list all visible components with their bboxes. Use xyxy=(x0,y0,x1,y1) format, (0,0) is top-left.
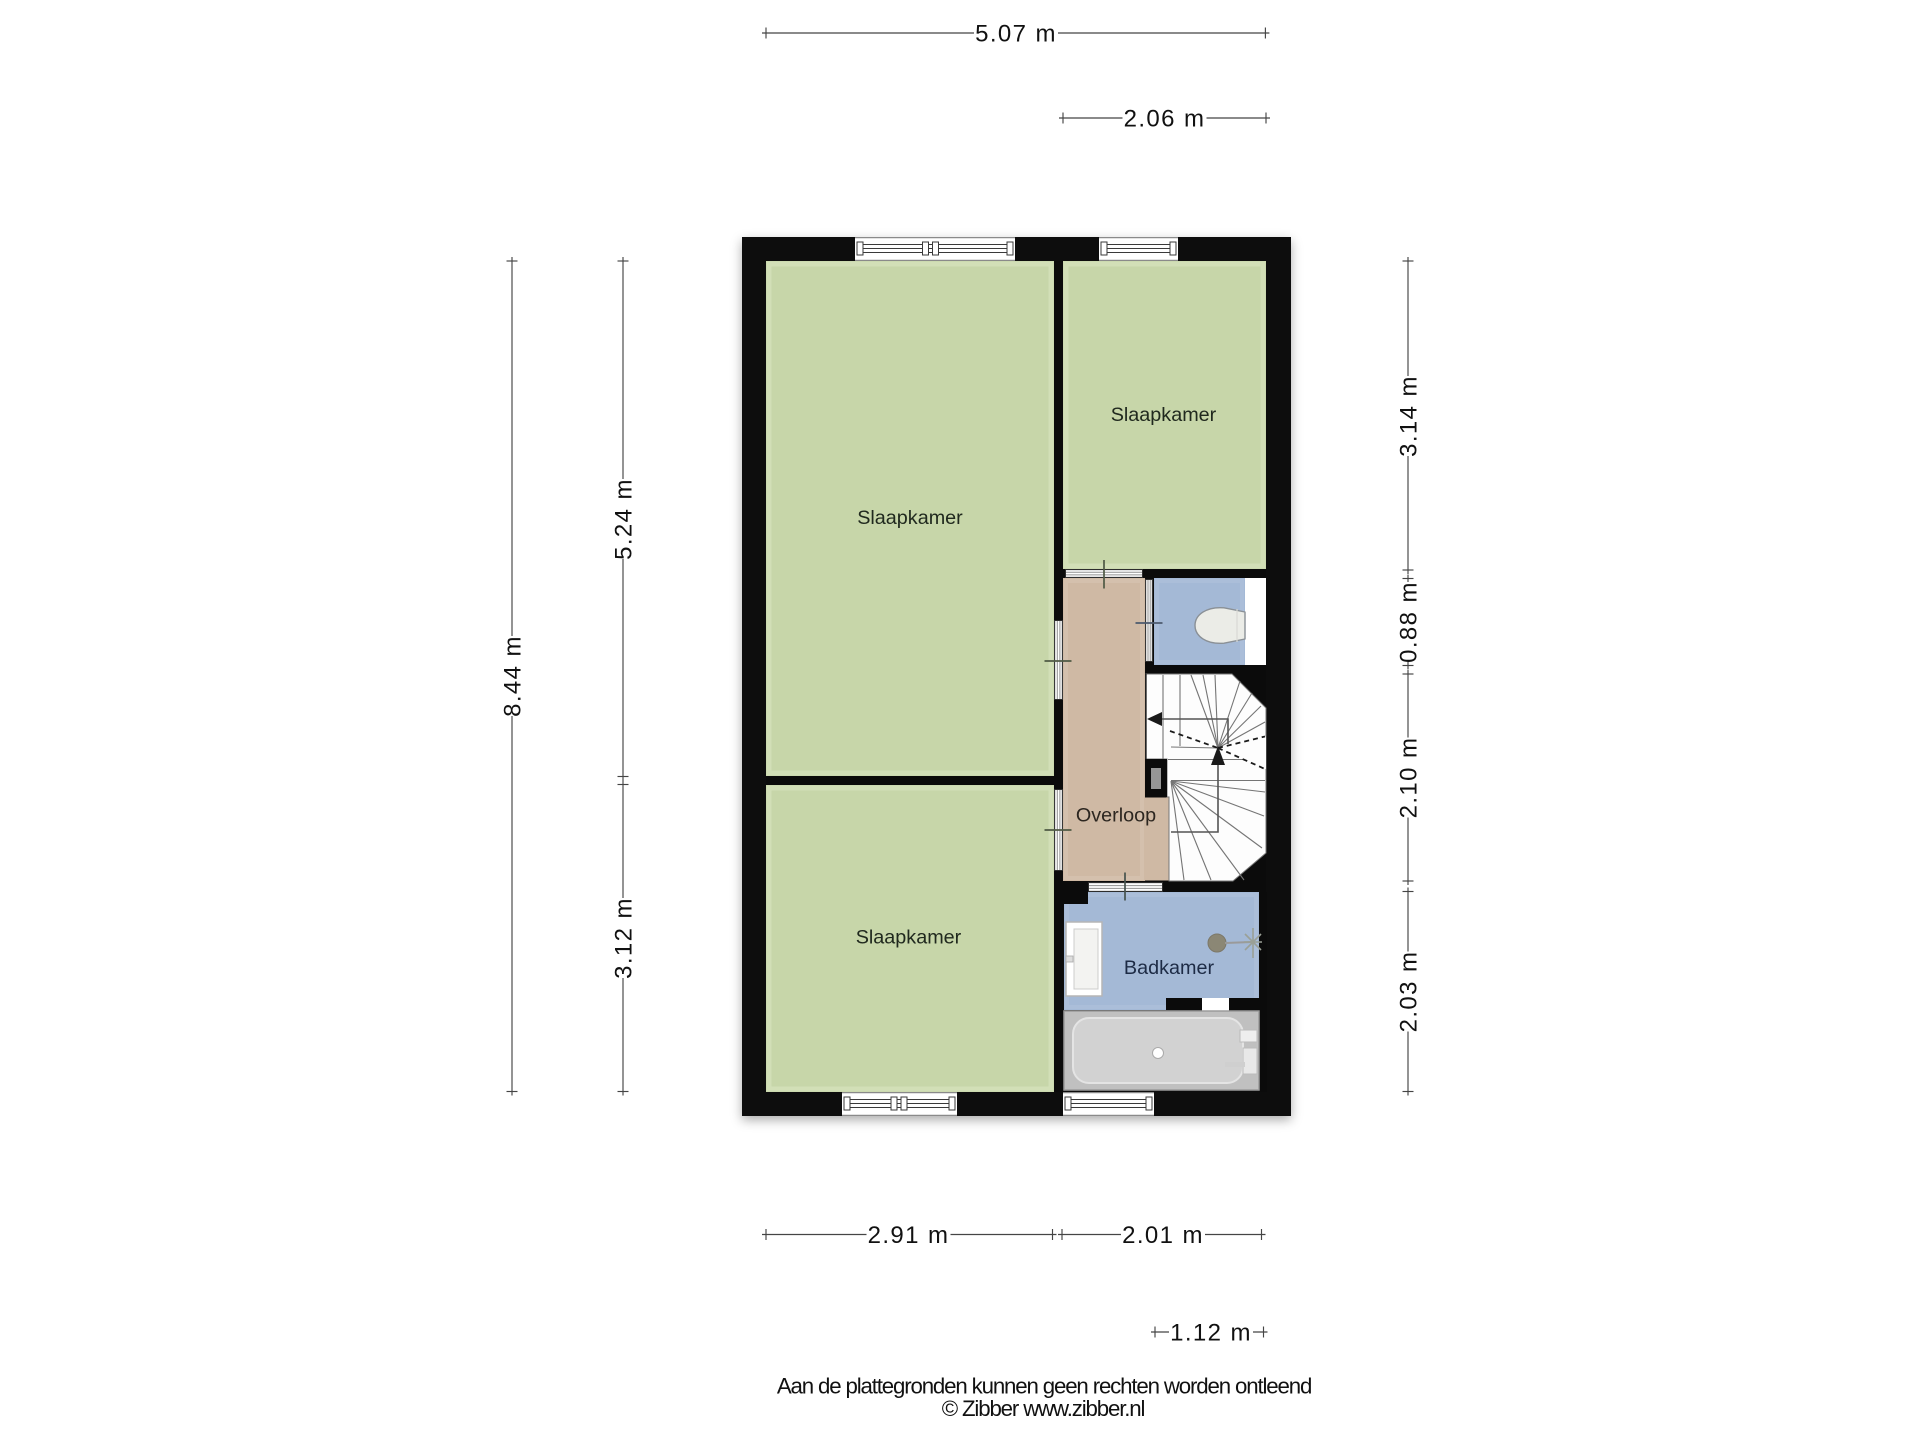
svg-text:Slaapkamer: Slaapkamer xyxy=(856,927,962,949)
svg-text:Overloop: Overloop xyxy=(1076,804,1156,826)
svg-text:3.12 m: 3.12 m xyxy=(611,897,638,979)
svg-text:Slaapkamer: Slaapkamer xyxy=(857,507,963,529)
svg-text:2.91 m: 2.91 m xyxy=(868,1222,950,1249)
svg-text:Aan de plattegronden kunnen ge: Aan de plattegronden kunnen geen rechten… xyxy=(777,1374,1311,1399)
svg-text:2.10 m: 2.10 m xyxy=(1396,737,1423,819)
svg-text:Slaapkamer: Slaapkamer xyxy=(1111,404,1217,426)
svg-text:5.24 m: 5.24 m xyxy=(611,478,638,560)
svg-text:Badkamer: Badkamer xyxy=(1124,957,1215,979)
svg-text:© Zibber www.zibber.nl: © Zibber www.zibber.nl xyxy=(942,1396,1145,1421)
svg-text:2.06 m: 2.06 m xyxy=(1124,106,1206,133)
svg-text:5.07 m: 5.07 m xyxy=(975,21,1057,48)
svg-text:3.14 m: 3.14 m xyxy=(1396,375,1423,457)
svg-text:0.88 m: 0.88 m xyxy=(1396,581,1423,663)
svg-text:2.01 m: 2.01 m xyxy=(1122,1222,1204,1249)
svg-text:8.44 m: 8.44 m xyxy=(500,635,527,717)
svg-text:2.03 m: 2.03 m xyxy=(1396,951,1423,1033)
svg-text:1.12 m: 1.12 m xyxy=(1170,1320,1252,1347)
